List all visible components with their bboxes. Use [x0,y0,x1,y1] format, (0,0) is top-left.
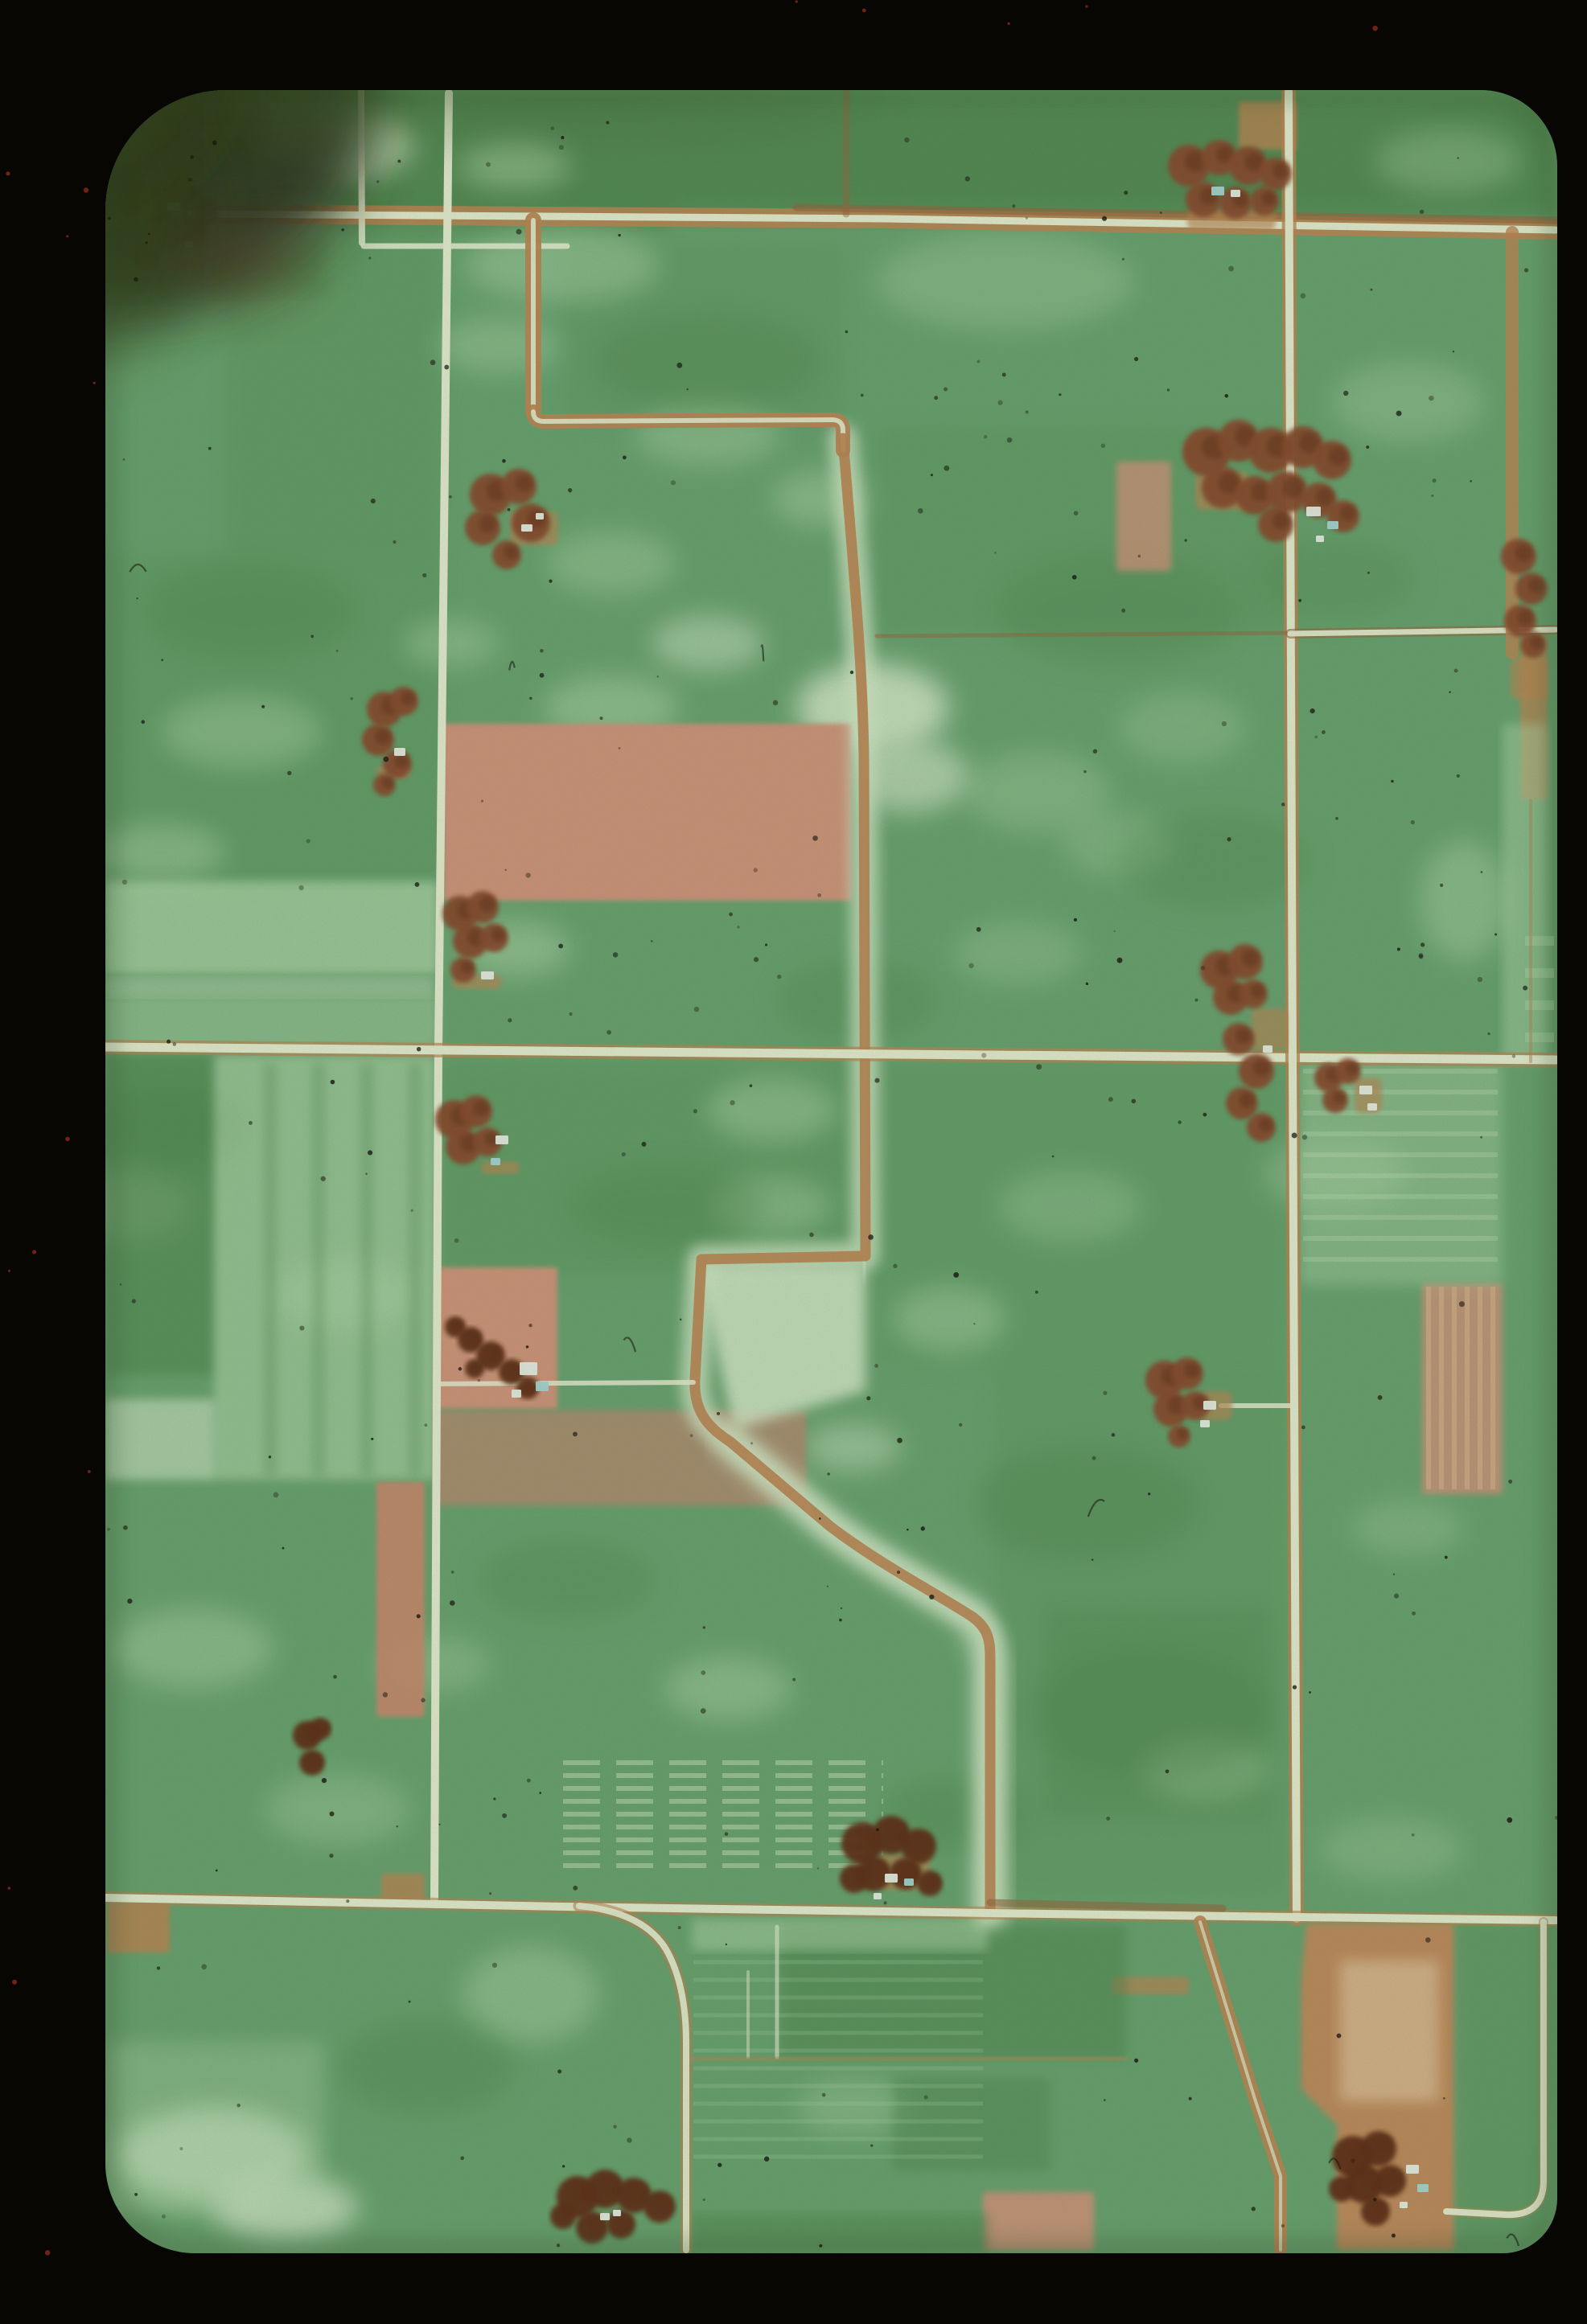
dust-speck [365,1173,368,1176]
mount-speck [1372,26,1378,31]
mount-speck [12,1980,17,1985]
dust-speck [438,1824,440,1825]
dust-speck [827,1472,830,1476]
dust-speck [107,1528,110,1531]
dust-speck [1397,947,1400,951]
dust-speck [1301,294,1306,299]
dust-speck [1507,1817,1512,1823]
dust-speck [1124,191,1128,195]
dust-speck [330,1812,335,1817]
mount-speck [93,382,96,384]
dust-speck [1392,2233,1396,2237]
dust-speck [1298,599,1301,602]
dust-speck [874,1364,878,1368]
mount-speck [45,2250,50,2255]
dust-speck [599,716,602,720]
dust-speck [1523,986,1527,991]
dust-speck [1301,1426,1305,1430]
dust-speck [1412,1612,1416,1616]
dust-speck [1086,983,1088,985]
dust-speck [1292,1132,1297,1138]
dust-speck [1112,1433,1116,1437]
dust-speck [557,2069,561,2073]
dust-speck [134,277,138,282]
dust-speck [322,1778,327,1783]
dust-speck [1227,837,1231,841]
dust-speck [493,1797,495,1800]
dust-speck [458,1367,463,1371]
dust-speck [931,474,933,476]
dust-speck [486,162,491,166]
photo-group [0,0,1559,2253]
dust-speck [1314,735,1318,738]
dust-speck [1394,1594,1399,1599]
dust-speck [1443,2097,1445,2100]
dust-speck [1478,977,1482,982]
dust-speck [1228,266,1234,272]
dust-speck [549,580,552,583]
dust-speck [421,1698,425,1702]
dust-speck [934,396,938,400]
dust-speck [994,552,997,554]
dust-speck [717,2163,722,2167]
dust-speck [371,499,376,503]
dust-speck [122,880,127,885]
dust-speck [368,1150,372,1155]
dust-speck [216,1870,218,1872]
dust-speck [1378,1395,1383,1400]
dust-speck [557,2244,560,2247]
dust-speck [157,1966,160,1969]
dust-speck [1138,555,1141,558]
dust-speck [701,1670,706,1675]
dust-speck [750,1442,753,1444]
dust-speck [508,508,511,511]
dust-speck [893,1264,897,1268]
dust-speck [671,480,676,485]
mount-speck [88,1470,91,1473]
dust-speck [141,720,145,724]
dust-speck [409,2001,411,2003]
dust-speck [1012,204,1015,207]
dust-speck [460,2156,464,2160]
dust-speck [623,455,627,459]
dust-speck [1026,217,1028,220]
dust-speck [299,1325,304,1330]
dust-speck [539,1792,541,1794]
dust-speck [1281,803,1285,807]
dust-speck [657,675,659,677]
film-grain-noise [105,90,1557,2253]
dust-speck [1160,211,1162,214]
dust-speck [701,1708,706,1714]
dust-speck [1092,1558,1094,1561]
dust-speck [397,159,401,162]
dust-speck [726,1944,727,1945]
dust-speck [137,597,138,599]
dust-speck [1508,1480,1512,1484]
dust-speck [161,659,163,661]
dust-speck [329,1854,333,1858]
dust-speck [376,180,379,183]
dust-speck [336,650,339,652]
dust-speck [618,234,620,236]
dust-speck [321,1176,326,1181]
dust-speck [1117,958,1123,963]
dust-speck [1178,1120,1181,1123]
dust-speck [641,1142,646,1147]
dust-speck [1366,446,1369,449]
dust-speck [179,2147,183,2150]
dust-speck [516,229,522,235]
dust-speck [1026,410,1029,413]
dust-speck [236,2104,241,2108]
dust-speck [188,178,192,182]
dust-speck [1425,1937,1431,1943]
dust-speck [529,697,532,700]
dust-speck [108,217,111,220]
dust-speck [977,360,981,363]
dust-speck [1059,393,1061,396]
dust-speck [1512,1054,1515,1057]
dust-speck [907,1529,909,1531]
dust-speck [351,697,353,700]
mount-speck [1085,5,1087,7]
slide-photo-frame [0,0,1587,2324]
dust-speck [1072,575,1077,580]
mount-speck [6,171,10,175]
dust-speck [717,1412,720,1415]
dust-speck [1035,1291,1038,1294]
dust-speck [817,1867,819,1869]
dust-speck [1322,730,1326,734]
dust-speck [703,2199,705,2201]
dust-speck [725,1832,729,1836]
dust-speck [273,1493,279,1498]
dust-speck [346,1899,349,1903]
dust-speck [897,1571,900,1574]
dust-speck [1122,258,1124,261]
dust-speck [383,1692,388,1697]
dust-speck [417,1047,421,1052]
dust-speck [929,1595,934,1599]
dust-speck [449,495,452,499]
dust-speck [686,388,688,390]
dust-speck [492,1963,497,1968]
dust-speck [1480,1136,1482,1139]
dust-speck [1343,391,1348,396]
dust-speck [1036,1064,1042,1070]
dust-speck [1224,394,1228,398]
dust-speck [1481,871,1483,873]
dust-speck [502,459,506,463]
dust-speck [606,1030,611,1035]
mount-speck [65,1137,70,1142]
film-grain [105,90,1557,2253]
dust-speck [918,508,923,514]
dust-speck [924,2095,928,2099]
dust-speck [944,466,949,471]
dust-speck [1302,1135,1307,1139]
dust-speck [1189,2097,1192,2100]
dust-speck [1203,1113,1207,1117]
dust-speck [573,1886,578,1891]
dust-speck [613,952,618,957]
dust-speck [208,447,212,450]
mount-speck [8,1887,11,1890]
dust-speck [703,1626,706,1629]
dust-speck [1194,999,1198,1002]
dust-speck [478,1379,480,1382]
dust-speck [1420,210,1424,214]
dust-speck [411,1209,413,1212]
mount-speck [796,0,798,2]
dust-speck [606,121,609,125]
dust-speck [981,1053,986,1057]
dust-speck [817,893,821,897]
dust-speck [876,1829,878,1831]
dust-speck [540,673,545,678]
dust-speck [1337,2034,1342,2039]
dust-speck [1429,396,1433,400]
dust-speck [558,943,563,948]
dust-speck [1433,478,1437,482]
dust-speck [127,1599,132,1603]
dust-speck [1420,942,1425,946]
dust-speck [1396,411,1402,417]
dust-speck [1002,373,1006,377]
dust-speck [1074,918,1077,922]
dust-speck [417,1614,421,1618]
dust-speck [819,2244,822,2248]
dust-speck [921,1526,925,1530]
dust-speck [1092,1456,1096,1460]
dust-speck [792,1678,796,1681]
dust-speck [754,957,759,962]
dust-speck [1457,774,1460,778]
dust-speck [508,1018,512,1022]
dust-speck [627,2137,631,2142]
dust-speck [845,331,849,334]
dust-speck [540,649,544,653]
dust-speck [1310,708,1315,713]
dust-speck [454,1238,459,1243]
dust-speck [959,1423,962,1427]
dust-speck [874,1078,879,1083]
dust-speck [1074,511,1079,515]
dust-speck [1166,1769,1170,1773]
dust-speck [528,1324,532,1327]
dust-speck [525,873,530,877]
dust-speck [1293,1685,1297,1689]
dust-speck [1007,437,1013,443]
dust-speck [569,1012,573,1016]
dust-speck [1104,2099,1106,2101]
dust-speck [559,145,564,150]
dust-speck [809,1233,814,1238]
dust-speck [861,393,864,396]
dust-speck [765,943,767,946]
dust-speck [953,1272,959,1278]
dust-speck [870,2145,873,2147]
dust-speck [819,1517,821,1520]
dust-speck [287,771,291,775]
dust-speck [1494,933,1497,935]
dust-speck [812,836,818,841]
dust-speck [1449,692,1450,693]
dust-speck [1101,444,1105,448]
dust-speck [773,700,779,706]
dust-speck [973,1323,975,1324]
mount-speck [32,1250,36,1254]
dust-speck [1371,289,1373,291]
dust-speck [730,1100,734,1105]
dust-speck [481,799,483,802]
dust-speck [1148,1493,1150,1495]
dust-speck [1113,930,1115,932]
dust-speck [167,1040,171,1044]
dust-speck [1222,721,1227,726]
dust-speck [1121,609,1125,613]
dust-speck [444,365,449,370]
dust-speck [822,2093,826,2097]
dust-speck [1185,539,1187,541]
dust-speck [694,1007,699,1012]
dust-speck [1134,357,1138,361]
dust-speck [422,573,426,577]
dust-speck [1393,1574,1395,1575]
dust-speck [678,1926,681,1929]
dust-speck [573,1432,578,1437]
dust-speck [968,963,973,968]
dust-speck [839,1619,842,1622]
dust-speck [1281,2224,1285,2228]
dust-speck [1453,351,1454,352]
dust-speck [976,927,981,932]
dust-speck [123,1525,128,1530]
dust-speck [944,388,948,392]
dust-speck [1351,2158,1355,2162]
dust-speck [1459,1301,1465,1307]
dust-speck [622,1152,626,1156]
dust-speck [613,2125,617,2129]
dust-speck [737,926,740,929]
dust-speck [729,913,733,917]
dust-speck [897,1438,902,1443]
dust-speck [561,136,564,139]
dust-speck [450,1600,455,1606]
dust-speck [680,1319,681,1320]
dust-speck [306,839,310,843]
dust-speck [1367,572,1370,574]
dust-speck [397,1825,398,1827]
mount-speck [862,9,866,13]
dust-speck [884,1901,887,1904]
dust-speck [298,885,303,890]
dust-speck [754,868,758,872]
dust-speck [371,1438,373,1440]
dust-speck [383,757,389,762]
dust-speck [1524,268,1528,272]
dust-speck [568,488,572,492]
dust-speck [693,1109,697,1113]
dust-speck [527,1779,531,1783]
dust-speck [132,1299,136,1303]
dust-speck [841,1608,842,1609]
dust-speck [173,1042,176,1045]
dust-speck [965,176,970,181]
dust-speck [619,747,621,749]
dust-speck [1102,216,1107,221]
dust-speck [282,1547,284,1550]
mount-speck [66,235,68,237]
dust-speck [1419,953,1424,958]
dust-speck [1412,1833,1415,1837]
dust-speck [1457,157,1459,158]
dust-speck [430,359,436,365]
dust-speck [1440,884,1443,887]
dust-speck [1391,780,1394,783]
dust-speck [148,233,150,235]
mount-speck [8,1270,10,1272]
dust-speck [562,2165,565,2167]
dust-speck [827,1586,828,1587]
dust-speck [866,1396,870,1400]
dust-speck [777,975,781,979]
dust-speck [504,868,507,871]
dust-speck [904,138,909,142]
dust-speck [162,2215,166,2219]
dust-speck [1132,1099,1136,1103]
dust-speck [451,1571,454,1574]
dust-speck [998,400,1003,405]
dust-speck [1454,669,1458,673]
dust-speck [1411,820,1415,824]
dust-speck [1373,2198,1377,2202]
dust-speck [424,1423,427,1427]
dust-speck [489,1892,491,1895]
dust-speck [1134,2059,1138,2063]
dust-speck [1445,1556,1448,1559]
dust-speck [502,1813,507,1818]
dust-speck [1431,495,1433,497]
dust-speck [526,1345,529,1349]
dust-speck [393,540,396,544]
dust-speck [341,228,343,231]
dust-speck [1309,1691,1311,1694]
dust-speck [269,1456,271,1458]
mount-speck [84,187,88,192]
dust-speck [1052,1156,1055,1158]
dust-speck [850,671,853,674]
dust-speck [415,882,420,887]
dust-speck [1201,966,1206,971]
dust-speck [1083,770,1087,774]
dust-speck [764,2157,769,2162]
dust-speck [1093,749,1097,753]
dust-speck [1487,1033,1490,1035]
dust-speck [331,1080,335,1085]
dust-speck [368,257,371,259]
dust-speck [1470,480,1472,482]
dust-speck [333,1675,337,1679]
dust-speck [1335,817,1338,820]
dust-speck [1252,2207,1256,2211]
dust-speck [201,1964,207,1969]
dust-speck [145,241,147,244]
dust-speck [868,1234,874,1240]
dust-speck [212,141,217,146]
